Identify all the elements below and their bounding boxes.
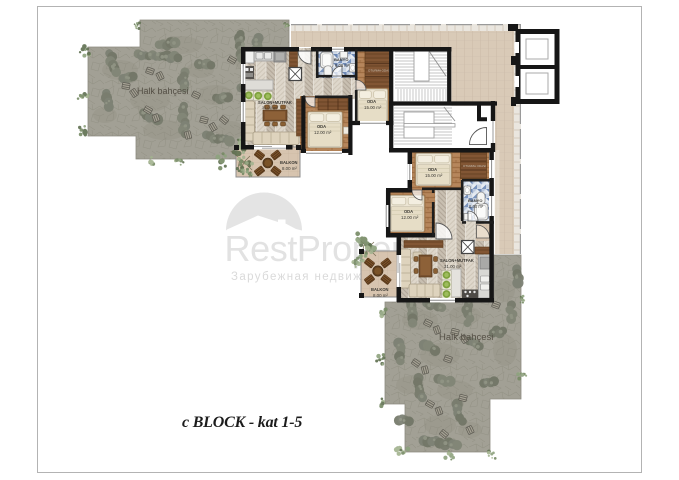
svg-text:ODA: ODA xyxy=(428,167,437,172)
svg-text:OTURMA ODASI: OTURMA ODASI xyxy=(368,69,391,73)
svg-text:8.00 m²: 8.00 m² xyxy=(373,293,388,298)
svg-text:6.00 m²: 6.00 m² xyxy=(335,63,350,68)
svg-text:8.00 m²: 8.00 m² xyxy=(282,166,297,171)
svg-text:BANYO: BANYO xyxy=(334,57,348,62)
svg-text:31.00 m²: 31.00 m² xyxy=(262,105,278,110)
svg-text:BALKON: BALKON xyxy=(371,287,389,292)
svg-text:12.00 m²: 12.00 m² xyxy=(401,215,419,220)
svg-text:15.00 m²: 15.00 m² xyxy=(425,173,443,178)
svg-text:Halk bahçesi: Halk bahçesi xyxy=(137,86,189,96)
svg-text:c BLOCK - kat 1-5: c BLOCK - kat 1-5 xyxy=(182,414,302,431)
svg-text:ODA: ODA xyxy=(404,209,413,214)
svg-text:15.00 m²: 15.00 m² xyxy=(364,105,382,110)
svg-text:ODA: ODA xyxy=(317,124,326,129)
svg-text:OTURMA ODASI: OTURMA ODASI xyxy=(463,164,486,168)
svg-text:ODA: ODA xyxy=(367,99,376,104)
svg-text:12.00 m²: 12.00 m² xyxy=(314,130,332,135)
svg-text:31.00 m²: 31.00 m² xyxy=(444,264,462,269)
svg-text:SALON+MUTFAK: SALON+MUTFAK xyxy=(440,258,474,263)
svg-text:Halk bahçesi: Halk bahçesi xyxy=(439,332,493,343)
svg-text:BANYO: BANYO xyxy=(468,198,482,203)
svg-text:BALKON: BALKON xyxy=(280,160,298,165)
svg-text:6.00 m²: 6.00 m² xyxy=(469,204,484,209)
